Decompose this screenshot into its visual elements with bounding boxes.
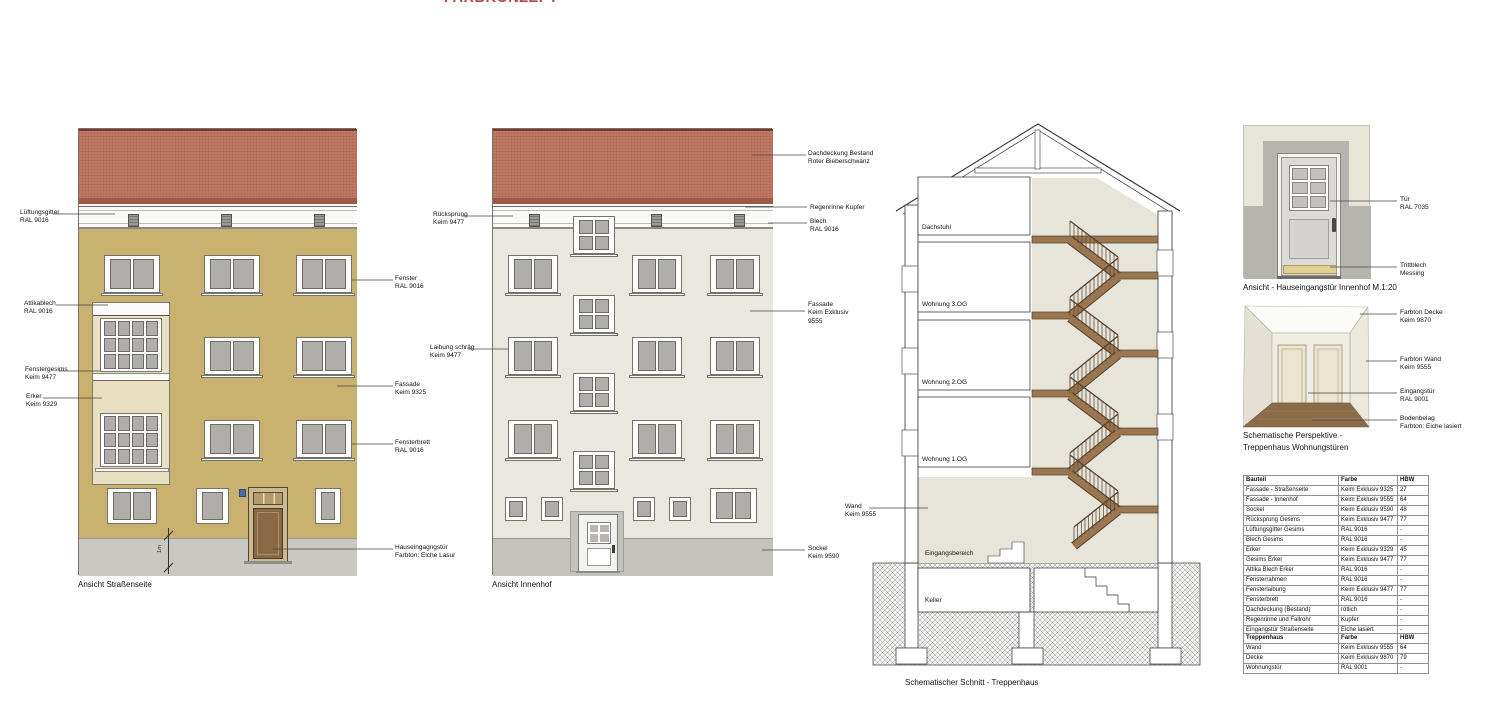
window — [508, 420, 558, 458]
window — [508, 255, 558, 293]
window-pane — [590, 525, 599, 533]
table-cell: Wohnungstür — [1244, 663, 1339, 673]
street-sockel — [79, 538, 357, 576]
table-cell: Keim Exklusiv 9590 — [1339, 505, 1398, 515]
window-pane — [132, 321, 144, 336]
courtyard-door-glazing — [587, 522, 611, 544]
table-cell: 77 — [1398, 555, 1429, 565]
table-cell: Gesims Erker — [1244, 555, 1339, 565]
window — [710, 488, 757, 523]
table-cell: 64 — [1398, 643, 1429, 653]
table-cell: 77 — [1398, 515, 1429, 525]
window-pane — [110, 259, 131, 289]
window — [315, 488, 341, 524]
door-transom — [253, 492, 283, 505]
window-sill — [570, 333, 618, 336]
room-label-eingang: Eingangsbereich — [925, 550, 973, 557]
label-laibung: Laibung schräg Keim 9477 — [430, 344, 474, 361]
table-header-cell: Bauteil — [1244, 476, 1339, 486]
street-entrance-door — [248, 487, 288, 562]
label-bodenbelag: Bodenbelag Farbton: Eiche lasiert — [1400, 415, 1461, 432]
window-pane — [534, 259, 552, 289]
window-pane — [579, 299, 593, 313]
window-pane — [210, 341, 231, 371]
door-detail-frame — [1277, 153, 1341, 279]
door-detail-handle — [1332, 218, 1336, 232]
window-sill — [101, 293, 163, 296]
table-cell: 48 — [1398, 505, 1429, 515]
window-pane — [600, 534, 609, 542]
window-sill — [293, 458, 355, 461]
window — [100, 318, 162, 372]
vent-grille-icon — [221, 214, 232, 227]
window-pane — [104, 416, 116, 431]
window-pane — [1292, 168, 1308, 180]
table-header-cell: HBW — [1398, 476, 1429, 486]
window-sill — [629, 293, 685, 296]
window-pane — [600, 525, 609, 533]
table-row: SockelKeim Exklusiv 959048 — [1244, 505, 1429, 515]
window-pane — [595, 455, 609, 469]
table-row: WandKeim Exklusiv 955564 — [1244, 643, 1429, 653]
window-pane — [590, 534, 599, 542]
table-cell: Attika Blech Erker — [1244, 565, 1339, 575]
window-pane — [132, 416, 144, 431]
window-pane — [716, 424, 734, 454]
window — [196, 488, 229, 524]
table-cell: 45 — [1398, 545, 1429, 555]
window-pane — [210, 259, 231, 289]
window-pane — [118, 354, 130, 369]
window — [107, 488, 157, 524]
window-pane — [735, 492, 752, 519]
window-pane — [1292, 196, 1308, 208]
window-pane — [202, 492, 223, 520]
table-cell: - — [1398, 595, 1429, 605]
street-elevation-caption: Ansicht Straßenseite — [78, 580, 152, 589]
window — [296, 255, 352, 293]
vent-grille-icon — [529, 214, 540, 227]
window-pane — [133, 492, 151, 520]
table-cell: Rücksprung Gesims — [1244, 515, 1339, 525]
window-pane — [716, 259, 734, 289]
window-pane — [509, 501, 523, 517]
door-detail-leaf — [1281, 157, 1337, 276]
window-pane — [595, 377, 609, 391]
vent-grille-icon — [734, 214, 745, 227]
table-row: FensterbrettRAL 9016- — [1244, 595, 1429, 605]
table-cell: Wand — [1244, 643, 1339, 653]
window-pane — [595, 471, 609, 485]
street-cornice — [79, 206, 357, 229]
window-pane — [736, 341, 754, 371]
window — [710, 420, 760, 458]
room-label-keller: Keller — [925, 597, 942, 604]
table-row: Fassade - InnenhofKeim Exklusiv 955564 — [1244, 495, 1429, 505]
courtyard-roof-eave — [493, 198, 773, 206]
table-cell: - — [1398, 565, 1429, 575]
window — [296, 337, 352, 375]
window — [204, 337, 260, 375]
window-pane — [579, 220, 593, 234]
masthead-title-clipped: FARBKONZEPT — [444, 0, 558, 6]
table-row: Regenrinne und FallrohrKupfer- — [1244, 615, 1429, 625]
table-cell: Dachdeckung (Bestand) — [1244, 605, 1339, 615]
window-pane — [595, 236, 609, 250]
courtyard-door-threshold — [576, 571, 620, 573]
table-cell: 27 — [1398, 485, 1429, 495]
label-fenstergesims: Fenstergesims Keim 9477 — [25, 366, 68, 383]
table-cell: Fassade - Straßenseite — [1244, 485, 1339, 495]
room-label-dachstuhl: Dachstuhl — [922, 224, 951, 231]
window-pane — [210, 424, 231, 454]
cornice-line — [493, 210, 773, 211]
room-label-og2: Wohnung 2.OG — [922, 379, 967, 386]
street-roof-eave — [79, 198, 357, 206]
window-pane — [118, 449, 130, 464]
window-pane — [104, 321, 116, 336]
window-pane — [545, 501, 559, 517]
stair-landing — [1116, 350, 1158, 357]
table-cell: Blech Gesims — [1244, 535, 1339, 545]
table-cell: rötlich — [1339, 605, 1398, 615]
label-lueftungsgitter: Lüftungsgitter RAL 9016 — [20, 209, 59, 226]
table-cell: Keim Exklusiv 9870 — [1339, 653, 1398, 663]
window — [104, 255, 160, 293]
door-leaf — [253, 508, 283, 559]
label-fenster: Fenster RAL 9016 — [395, 275, 424, 292]
window — [669, 497, 691, 521]
street-roof — [79, 129, 357, 206]
door-detail-kickplate — [1283, 265, 1337, 274]
courtyard-door-panel — [587, 548, 611, 566]
label-fassade-courtyard: Fassade Keim Exklusiv 9555 — [808, 301, 848, 326]
window-pane — [658, 341, 676, 371]
color-table: TreppenhausFarbeHBWWandKeim Exklusiv 955… — [1243, 633, 1429, 674]
window-pane — [325, 424, 346, 454]
table-cell: Keim Exklusiv 9555 — [1339, 495, 1398, 505]
window-pane — [579, 393, 593, 407]
table-row: DeckeKeim Exklusiv 987079 — [1244, 653, 1429, 663]
label-erker: Erker Keim 9329 — [26, 393, 57, 410]
window — [573, 451, 615, 489]
section-drawing — [860, 118, 1210, 688]
stair-landing — [1116, 428, 1158, 435]
window-pane — [514, 259, 532, 289]
section-caption: Schematischer Schnitt - Treppenhaus — [905, 678, 1038, 687]
window — [632, 420, 682, 458]
table-cell: Fensterbrett — [1244, 595, 1339, 605]
table-cell: Keim Exklusiv 9325 — [1339, 485, 1398, 495]
table-cell: - — [1398, 525, 1429, 535]
table-row: WohnungstürRAL 9001- — [1244, 663, 1429, 673]
window-pane — [325, 259, 346, 289]
label-eingangstuer: Eingangstür RAL 9001 — [1400, 388, 1435, 405]
table-cell: Sockel — [1244, 505, 1339, 515]
label-ruecksprung: Rücksprung Keim 9477 — [433, 211, 468, 228]
window-pane — [736, 424, 754, 454]
window-pane — [514, 424, 532, 454]
window-pane — [534, 424, 552, 454]
vent-grille-icon — [314, 214, 325, 227]
window-pane — [118, 321, 130, 336]
table-row: Fassade - StraßenseiteKeim Exklusiv 9325… — [1244, 485, 1429, 495]
window-pane — [736, 259, 754, 289]
table-cell: Keim Exklusiv 9329 — [1339, 545, 1398, 555]
table-cell: Fassade - Innenhof — [1244, 495, 1339, 505]
table-cell: - — [1398, 575, 1429, 585]
label-fassade-street: Fassade Keim 9325 — [395, 381, 426, 398]
window-pane — [638, 424, 656, 454]
window-pane — [104, 433, 116, 448]
window-pane — [1310, 196, 1326, 208]
perspective-caption: Schematische Perspektive - Treppenhaus W… — [1243, 430, 1348, 454]
window-pane — [132, 449, 144, 464]
window-sill — [201, 375, 263, 378]
window-pane — [146, 321, 158, 336]
table-row: FensterrahmenRAL 9016- — [1244, 575, 1429, 585]
window-pane — [133, 259, 154, 289]
table-cell: Regenrinne und Fallrohr — [1244, 615, 1339, 625]
table-cell: - — [1398, 615, 1429, 625]
courtyard-door-handle — [612, 545, 615, 553]
window-pane — [716, 341, 734, 371]
window-pane — [118, 416, 130, 431]
window-sill — [570, 254, 618, 257]
window-pane — [132, 354, 144, 369]
label-farbton-decke: Farbton Decke Keim 9870 — [1400, 309, 1443, 326]
courtyard-elevation-caption: Ansicht Innenhof — [492, 580, 552, 589]
window-pane — [146, 449, 158, 464]
window-sill — [629, 458, 685, 461]
window-pane — [658, 259, 676, 289]
ridge-post — [1035, 130, 1040, 169]
vent-grille-icon — [651, 214, 662, 227]
label-fensterbrett: Fensterbrett RAL 9016 — [395, 439, 430, 456]
house-number-plate — [239, 489, 246, 497]
door-threshold — [244, 561, 292, 564]
window-sill — [505, 293, 561, 296]
table-cell: RAL 9016 — [1339, 565, 1398, 575]
table-header-cell: HBW — [1398, 634, 1429, 644]
window-sill — [570, 411, 618, 414]
table-cell: Lüftungsgitter Gesims — [1244, 525, 1339, 535]
window-sill — [629, 375, 685, 378]
window-pane — [579, 455, 593, 469]
window-pane — [579, 315, 593, 329]
window — [632, 255, 682, 293]
window-pane — [146, 338, 158, 353]
courtyard-door — [578, 514, 618, 572]
treppenhaus-color-table: TreppenhausFarbeHBWWandKeim Exklusiv 955… — [1243, 633, 1429, 674]
table-row: Gesims ErkerKeim Exklusiv 947777 — [1244, 555, 1429, 565]
window-pane — [132, 338, 144, 353]
table-row: Attika Blech ErkerRAL 9016- — [1244, 565, 1429, 575]
window — [505, 497, 527, 521]
window-pane — [118, 433, 130, 448]
table-cell: Fensterrahmen — [1244, 575, 1339, 585]
window — [573, 295, 615, 333]
window-pane — [104, 449, 116, 464]
window — [710, 337, 760, 375]
stair-landing — [1116, 506, 1158, 513]
label-blech: Blech RAL 9016 — [810, 218, 839, 235]
window-pane — [716, 492, 733, 519]
window-pane — [302, 259, 323, 289]
window-pane — [302, 424, 323, 454]
perspective-drawing — [1243, 303, 1373, 430]
window-sill — [505, 375, 561, 378]
window-pane — [321, 492, 335, 520]
window-pane — [233, 259, 254, 289]
table-cell: - — [1398, 535, 1429, 545]
door-detail-threshold — [1277, 276, 1341, 279]
window-pane — [638, 341, 656, 371]
window-pane — [1292, 182, 1308, 194]
table-cell: RAL 9001 — [1339, 663, 1398, 673]
window — [204, 420, 260, 458]
table-cell: RAL 9016 — [1339, 595, 1398, 605]
window-sill — [570, 489, 618, 492]
courtyard-cornice — [493, 206, 773, 229]
label-tuer: Tür RAL 7035 — [1400, 196, 1429, 213]
table-cell: Keim Exklusiv 9555 — [1339, 643, 1398, 653]
table-cell: Decke — [1244, 653, 1339, 663]
left-wall — [905, 205, 918, 563]
color-table: BauteilFarbeHBWFassade - StraßenseiteKei… — [1243, 475, 1429, 655]
window — [508, 337, 558, 375]
window-pane — [637, 501, 651, 517]
door-detail-glazing — [1289, 165, 1329, 211]
table-cell: - — [1398, 605, 1429, 615]
window-pane — [579, 471, 593, 485]
window-sill — [505, 458, 561, 461]
courtyard-roof — [493, 129, 773, 206]
window-pane — [658, 424, 676, 454]
window-pane — [146, 416, 158, 431]
window-pane — [595, 315, 609, 329]
label-wand-section: Wand Keim 9555 — [845, 503, 876, 520]
table-cell: 79 — [1398, 653, 1429, 663]
table-row: Rücksprung GesimsKeim Exklusiv 947777 — [1244, 515, 1429, 525]
table-header-cell: Farbe — [1339, 634, 1398, 644]
label-farbton-wand: Farbton Wand Keim 9555 — [1400, 356, 1441, 373]
room-label-og1: Wohnung 1.OG — [922, 456, 967, 463]
window-pane — [638, 259, 656, 289]
table-cell: RAL 9016 — [1339, 575, 1398, 585]
window-pane — [113, 492, 131, 520]
room-label-og3: Wohnung 3.OG — [922, 301, 967, 308]
window-pane — [146, 433, 158, 448]
window-pane — [132, 433, 144, 448]
table-header-cell: Treppenhaus — [1244, 634, 1339, 644]
window — [710, 255, 760, 293]
door-detail-drawing — [1243, 125, 1370, 278]
window-sill — [201, 458, 263, 461]
keller-room — [918, 568, 1030, 612]
table-row: Lüftungsgitter GesimsRAL 9016- — [1244, 525, 1429, 535]
window — [100, 413, 162, 467]
table-row: FensterlaibungKeim Exklusiv 947777 — [1244, 585, 1429, 595]
window-pane — [534, 341, 552, 371]
window-sill — [293, 293, 355, 296]
bauteil-color-table: BauteilFarbeHBWFassade - StraßenseiteKei… — [1243, 475, 1429, 655]
window — [541, 497, 563, 521]
table-cell: 64 — [1398, 495, 1429, 505]
window-pane — [514, 341, 532, 371]
label-sockel: Sockel Keim 9590 — [808, 545, 839, 562]
door-detail-panel — [1289, 219, 1329, 259]
stair-landing — [1116, 272, 1158, 279]
door-detail-caption: Ansicht - Hauseingangstür Innenhof M.1:2… — [1243, 283, 1397, 292]
window-sill — [707, 293, 763, 296]
erker-sill-band — [95, 468, 169, 472]
table-row: ErkerKeim Exklusiv 932945 — [1244, 545, 1429, 555]
window-pane — [673, 501, 687, 517]
window-pane — [302, 341, 323, 371]
window-pane — [233, 424, 254, 454]
table-cell: RAL 9016 — [1339, 535, 1398, 545]
table-cell: Erker — [1244, 545, 1339, 555]
table-cell: Keim Exklusiv 9477 — [1339, 515, 1398, 525]
window-pane — [595, 299, 609, 313]
door-panel-line — [257, 512, 279, 555]
window-pane — [595, 393, 609, 407]
window-pane — [104, 354, 116, 369]
window — [296, 420, 352, 458]
table-cell: Keim Exklusiv 9477 — [1339, 555, 1398, 565]
window-sill — [293, 375, 355, 378]
vent-grille-icon — [128, 214, 139, 227]
label-trittblech: Trittblech Messing — [1400, 262, 1427, 279]
drawing-canvas: FARBKONZEPT 1m Ansicht Straßenseite — [0, 0, 1500, 701]
table-cell: Kupfer — [1339, 615, 1398, 625]
scale-marker-label: 1m — [157, 545, 163, 553]
table-cell: 77 — [1398, 585, 1429, 595]
label-regenrinne: Regenrinne Kupfer — [810, 204, 865, 212]
window-pane — [595, 220, 609, 234]
table-cell: Fensterlaibung — [1244, 585, 1339, 595]
cornice-line — [79, 210, 357, 211]
table-cell: - — [1398, 663, 1429, 673]
window — [633, 497, 655, 521]
window-pane — [579, 377, 593, 391]
table-row: Blech GesimsRAL 9016- — [1244, 535, 1429, 545]
window — [632, 337, 682, 375]
erker-gesims-band — [93, 373, 169, 381]
window-sill — [707, 458, 763, 461]
table-cell: Keim Exklusiv 9477 — [1339, 585, 1398, 595]
label-hauseingangstuer: Hauseingagngstür Farbton: Eiche Lasur — [395, 544, 455, 561]
window-sill — [201, 293, 263, 296]
window-pane — [325, 341, 346, 371]
window-sill — [707, 375, 763, 378]
window-pane — [146, 354, 158, 369]
window-pane — [233, 341, 254, 371]
erker-attika-band — [93, 303, 169, 316]
label-dachdeckung: Dachdeckung Bestand Roter Bieberschwanz — [808, 150, 873, 167]
window-pane — [104, 338, 116, 353]
window — [204, 255, 260, 293]
window-pane — [579, 236, 593, 250]
window-pane — [118, 338, 130, 353]
courtyard-sockel — [493, 538, 773, 576]
table-header-cell: Farbe — [1339, 476, 1398, 486]
table-cell: RAL 9016 — [1339, 525, 1398, 535]
window — [573, 373, 615, 411]
window-pane — [1310, 182, 1326, 194]
window — [573, 216, 615, 254]
